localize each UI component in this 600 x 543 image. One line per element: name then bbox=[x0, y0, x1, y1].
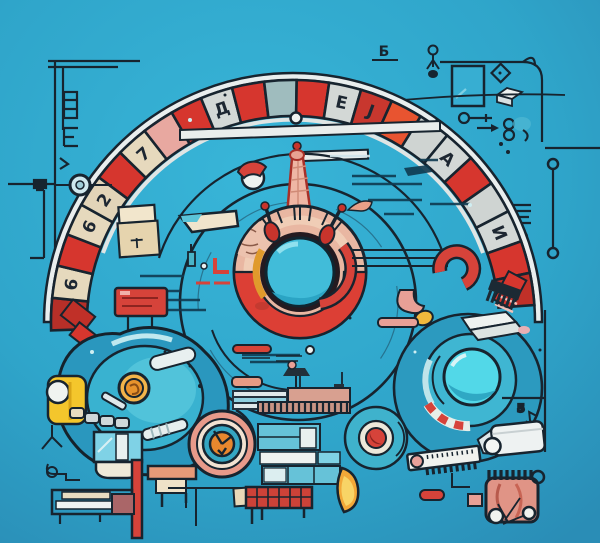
glyph-five: 5 bbox=[517, 402, 525, 415]
arch-segment-12 bbox=[264, 80, 297, 118]
clock-gauge bbox=[189, 410, 255, 477]
red-capsule bbox=[420, 490, 444, 500]
deck-box bbox=[288, 388, 350, 402]
glyph-be: Б bbox=[379, 44, 390, 60]
red-bar bbox=[233, 345, 271, 353]
swirl-target bbox=[345, 407, 407, 469]
scene-canvas: Б 1 6627ДEJAИ bbox=[0, 0, 600, 543]
card-box bbox=[116, 205, 159, 258]
bar-node bbox=[291, 113, 302, 124]
illustration-stage: Б 1 6627ДEJAИ bbox=[0, 0, 600, 543]
square-panel bbox=[452, 66, 484, 106]
